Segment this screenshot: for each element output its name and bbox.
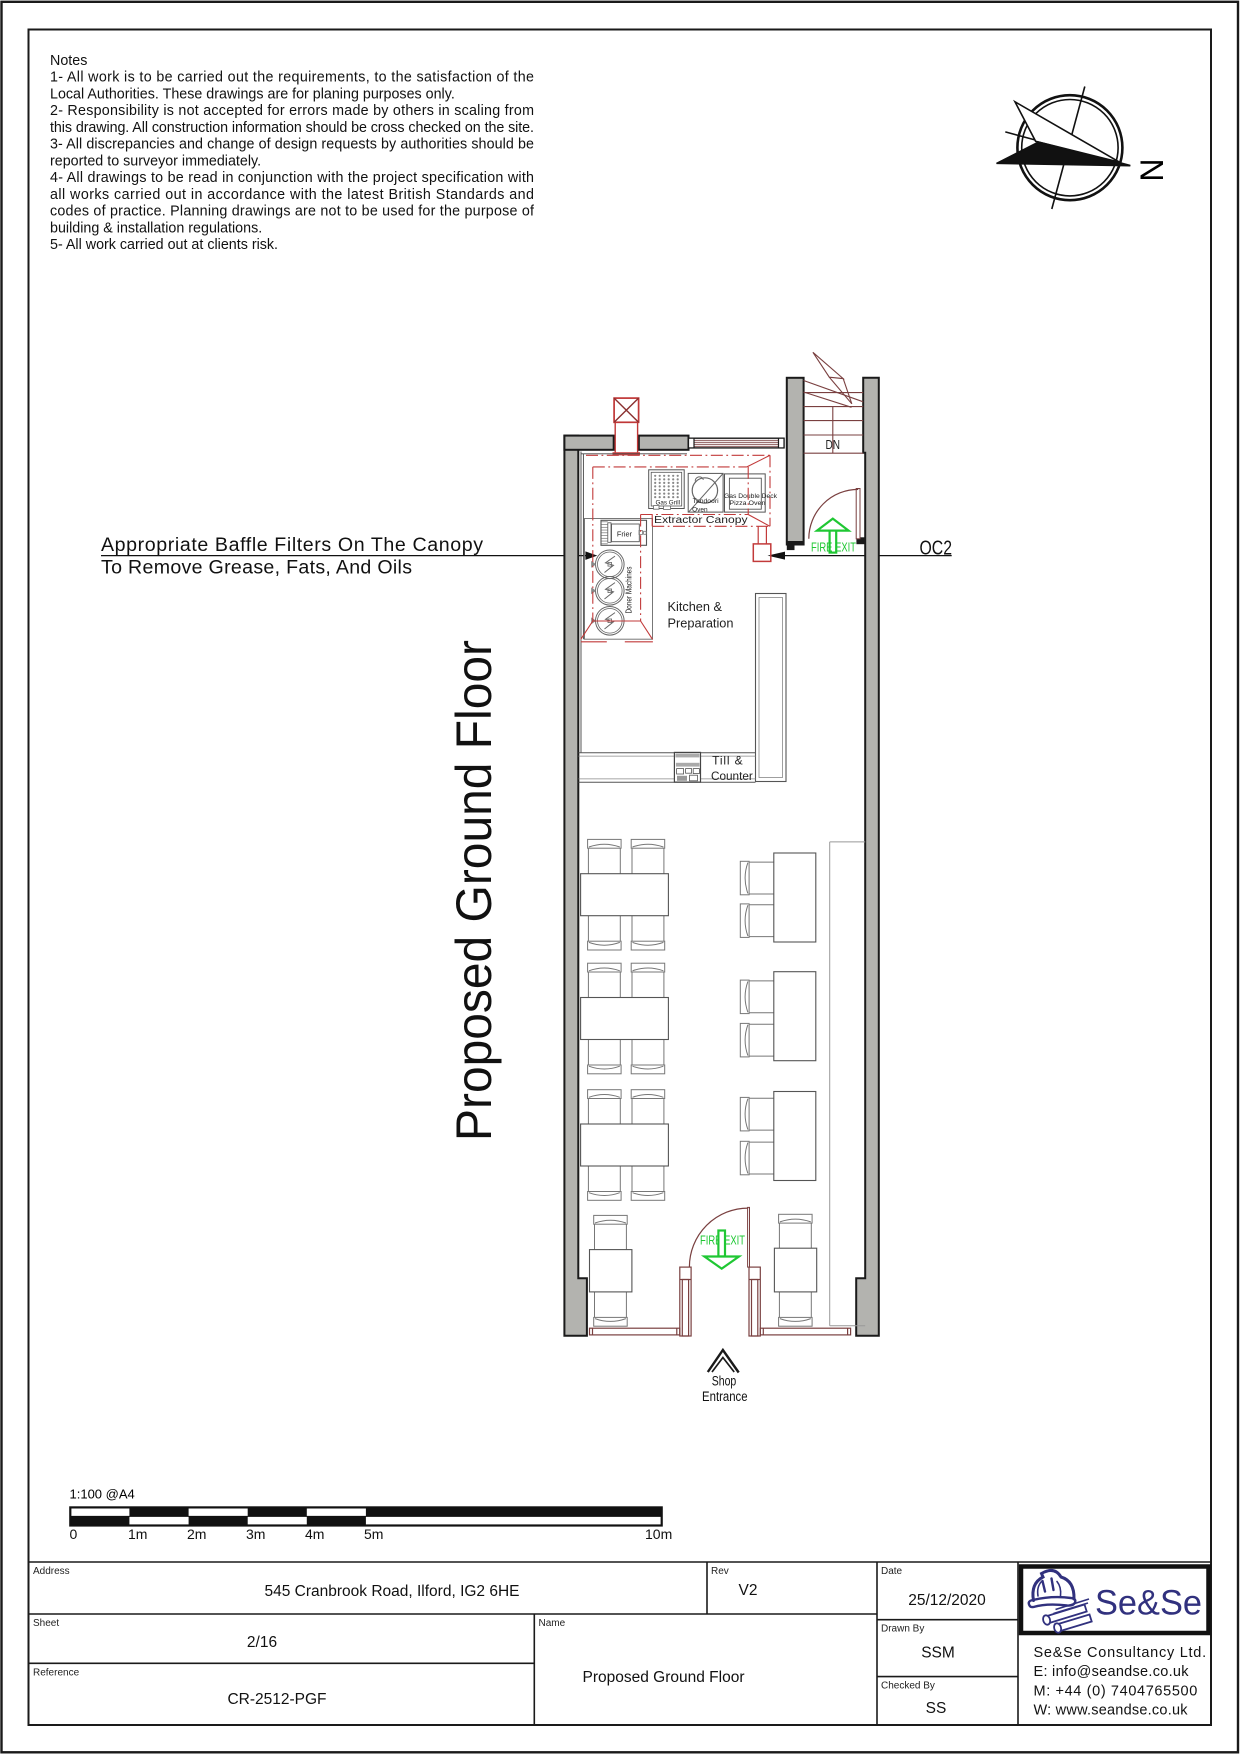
svg-text:all works carried out in accor: all works carried out in accordance with… xyxy=(50,187,534,203)
svg-text:3m: 3m xyxy=(246,1526,265,1542)
svg-text:DN: DN xyxy=(826,438,841,452)
svg-text:E: info@seandse.co.uk: E: info@seandse.co.uk xyxy=(1034,1664,1190,1680)
svg-text:Address: Address xyxy=(33,1566,70,1577)
svg-text:Name: Name xyxy=(539,1618,566,1629)
svg-text:Shop: Shop xyxy=(712,1374,737,1389)
svg-text:building & installation regula: building & installation regulations. xyxy=(50,220,262,236)
svg-text:Se&Se Consultancy Ltd.: Se&Se Consultancy Ltd. xyxy=(1034,1645,1207,1661)
svg-text:Reference: Reference xyxy=(33,1668,80,1679)
svg-text:Till &: Till & xyxy=(712,754,743,768)
svg-text:Proposed Ground Floor: Proposed Ground Floor xyxy=(583,1669,745,1686)
svg-text:SSM: SSM xyxy=(921,1645,955,1662)
svg-text:reported to surveyor immediate: reported to surveyor immediately. xyxy=(50,153,261,169)
svg-text:Checked By: Checked By xyxy=(881,1681,935,1692)
svg-text:codes of practice. Planning dr: codes of practice. Planning drawings are… xyxy=(50,204,534,220)
svg-text:2- Responsibility is not accep: 2- Responsibility is not accepted for er… xyxy=(50,103,534,119)
svg-text:Rev: Rev xyxy=(711,1566,729,1577)
svg-text:SS: SS xyxy=(926,1700,947,1717)
svg-text:Entrance: Entrance xyxy=(702,1389,748,1404)
svg-text:Extractor Canopy: Extractor Canopy xyxy=(654,515,748,526)
svg-text:N: N xyxy=(1134,159,1170,182)
svg-text:Date: Date xyxy=(881,1566,903,1577)
svg-text:3- All discrepancies and chang: 3- All discrepancies and change of desig… xyxy=(50,137,534,153)
svg-text:Gas Grill: Gas Grill xyxy=(656,500,681,507)
svg-text:2/16: 2/16 xyxy=(247,1634,277,1651)
svg-text:5- All work carried out at cli: 5- All work carried out at clients risk. xyxy=(50,237,278,253)
svg-text:Frier: Frier xyxy=(617,530,633,539)
svg-text:Oven: Oven xyxy=(692,506,708,513)
svg-text:V2: V2 xyxy=(739,1582,758,1599)
svg-text:To Remove Grease, Fats, And Oi: To Remove Grease, Fats, And Oils xyxy=(101,557,412,579)
svg-text:25/12/2020: 25/12/2020 xyxy=(908,1592,986,1609)
svg-text:4- All drawings to be read in: 4- All drawings to be read in conjunctio… xyxy=(50,170,534,186)
svg-text:Counter: Counter xyxy=(711,769,753,783)
svg-text:Notes: Notes xyxy=(50,53,87,69)
svg-text:10m: 10m xyxy=(645,1526,672,1542)
svg-text:this drawing. All construction: this drawing. All construction informati… xyxy=(50,120,534,136)
svg-text:M: +44 (0) 7404765500: M: +44 (0) 7404765500 xyxy=(1034,1683,1198,1699)
svg-text:5m: 5m xyxy=(364,1526,383,1542)
svg-text:Pizza Oven: Pizza Oven xyxy=(729,500,765,507)
svg-text:Drawn By: Drawn By xyxy=(881,1624,924,1635)
svg-text:4m: 4m xyxy=(305,1526,324,1542)
svg-text:Kitchen &: Kitchen & xyxy=(668,600,723,614)
svg-text:Local Authorities. These drawi: Local Authorities. These drawings are fo… xyxy=(50,87,455,103)
svg-text:FIRE EXIT: FIRE EXIT xyxy=(811,540,856,555)
svg-text:Sheet: Sheet xyxy=(33,1618,59,1629)
svg-text:W: www.seandse.co.uk: W: www.seandse.co.uk xyxy=(1034,1703,1189,1719)
svg-text:Se&Se: Se&Se xyxy=(1095,1584,1202,1623)
svg-text:CR-2512-PGF: CR-2512-PGF xyxy=(227,1691,326,1708)
svg-text:2m: 2m xyxy=(187,1526,206,1542)
svg-text:Proposed Ground Floor: Proposed Ground Floor xyxy=(446,640,502,1141)
svg-text:1m: 1m xyxy=(128,1526,147,1542)
svg-text:OC2: OC2 xyxy=(920,538,953,560)
svg-text:Appropriate Baffle Filters On: Appropriate Baffle Filters On The Canopy xyxy=(101,534,483,556)
svg-text:0: 0 xyxy=(70,1526,78,1542)
svg-text:Tandoori: Tandoori xyxy=(693,498,719,505)
svg-text:Doner Machines: Doner Machines xyxy=(625,567,634,614)
svg-text:1- All work is to be carried o: 1- All work is to be carried out the req… xyxy=(50,70,534,86)
svg-text:545 Cranbrook Road, Ilford, IG: 545 Cranbrook Road, Ilford, IG2 6HE xyxy=(264,1583,519,1600)
svg-text:Preparation: Preparation xyxy=(668,617,734,631)
svg-text:1:100 @A4: 1:100 @A4 xyxy=(70,1487,135,1502)
